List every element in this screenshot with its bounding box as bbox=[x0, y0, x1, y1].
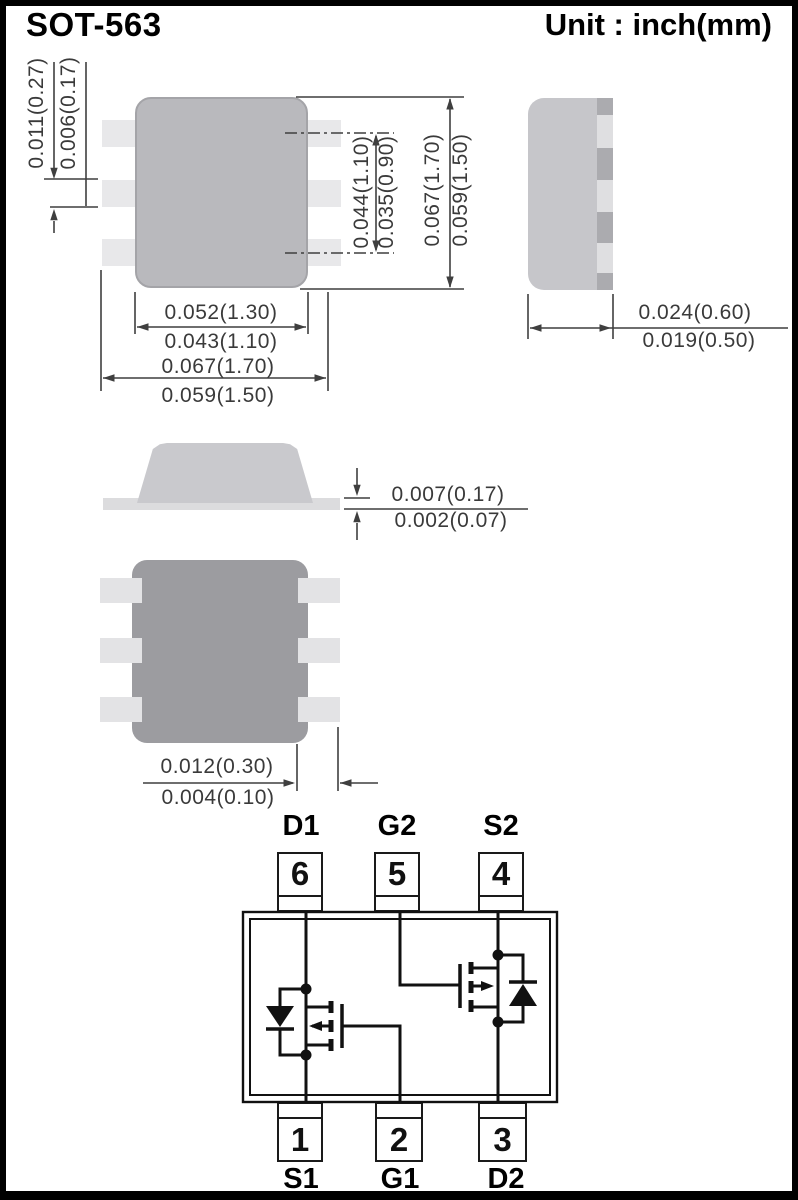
dim-pin-span-max: 0.044(1.10) bbox=[350, 136, 374, 249]
dim-overall-width-max: 0.067(1.70) bbox=[162, 355, 275, 379]
junction-dot bbox=[493, 1017, 504, 1028]
dim-standoff-min: 0.002(0.07) bbox=[395, 509, 508, 533]
junction-dot bbox=[301, 984, 312, 995]
dim-pin-span-min: 0.035(0.90) bbox=[375, 136, 399, 249]
dim-lead-width-min: 0.006(0.17) bbox=[57, 57, 81, 170]
dim-lead-width-max: 0.011(0.27) bbox=[25, 57, 49, 168]
dim-body-width-min: 0.043(1.10) bbox=[165, 330, 278, 354]
junction-dot bbox=[301, 1050, 312, 1061]
dim-standoff-max: 0.007(0.17) bbox=[392, 483, 505, 507]
dim-pad-length-max: 0.012(0.30) bbox=[161, 755, 274, 779]
dim-body-height-max: 0.067(1.70) bbox=[421, 134, 445, 247]
junction-dot bbox=[493, 950, 504, 961]
dim-overall-width-min: 0.059(1.50) bbox=[162, 384, 275, 408]
datasheet-package-drawing: SOT-563 Unit : inch(mm) bbox=[0, 0, 798, 1200]
dim-pad-length-min: 0.004(0.10) bbox=[162, 786, 275, 810]
dim-body-width-max: 0.052(1.30) bbox=[165, 301, 278, 325]
dim-side-thickness-max: 0.024(0.60) bbox=[639, 301, 752, 325]
mosfet-schematic bbox=[0, 0, 798, 1200]
dim-body-height-min: 0.059(1.50) bbox=[449, 134, 473, 247]
dim-side-thickness-min: 0.019(0.50) bbox=[643, 329, 756, 353]
